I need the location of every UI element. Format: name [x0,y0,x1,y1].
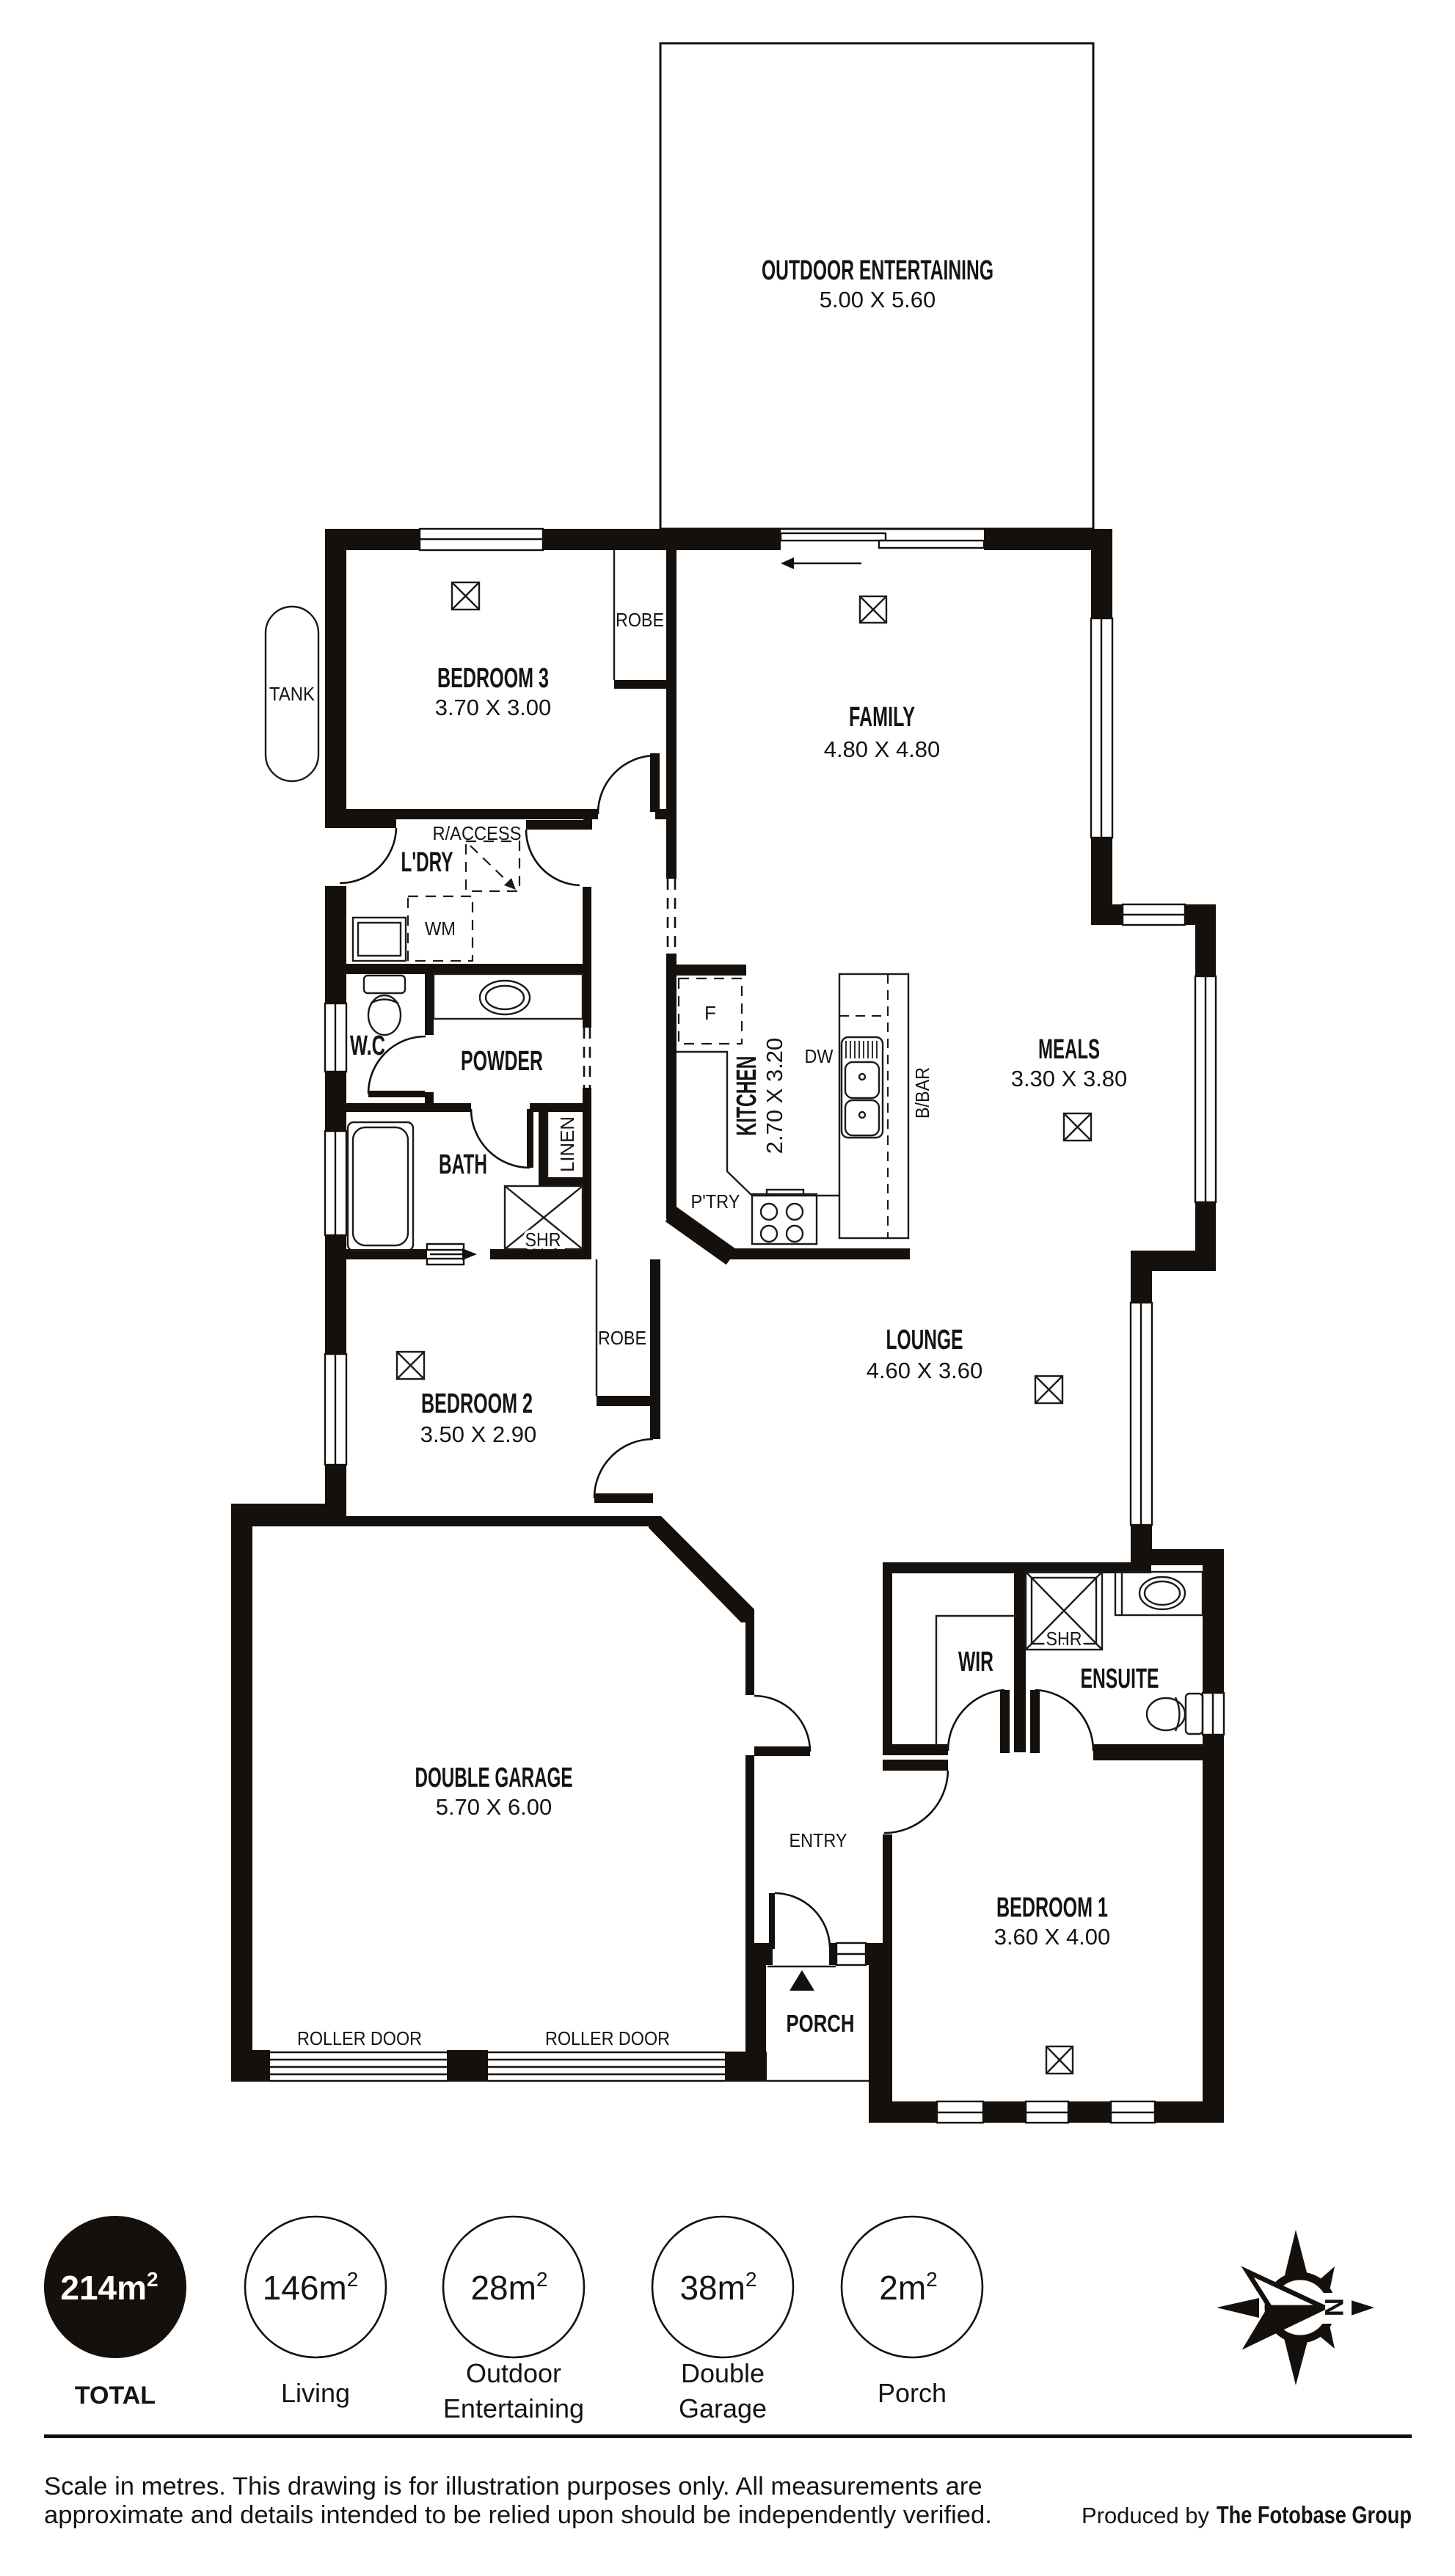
svg-text:DOUBLE GARAGE: DOUBLE GARAGE [415,1763,573,1793]
svg-text:LOUNGE: LOUNGE [886,1325,963,1355]
svg-text:MEALS: MEALS [1038,1034,1100,1065]
svg-text:Living: Living [281,2378,350,2408]
svg-text:F: F [704,1002,716,1024]
svg-text:WIR: WIR [958,1647,993,1677]
svg-text:SHR: SHR [525,1229,561,1251]
svg-text:L'DRY: L'DRY [401,847,453,878]
svg-text:Produced by: Produced by [1082,2503,1210,2528]
svg-text:TANK: TANK [269,683,316,705]
svg-text:ROLLER DOOR: ROLLER DOOR [545,2027,670,2049]
svg-text:3.50 X 2.90: 3.50 X 2.90 [420,1421,537,1447]
svg-text:28m2: 28m2 [470,2268,547,2307]
svg-text:Scale in metres. This drawing: Scale in metres. This drawing is for ill… [44,2473,982,2500]
svg-text:ROBE: ROBE [598,1327,646,1349]
svg-text:3.70 X 3.00: 3.70 X 3.00 [435,695,552,720]
svg-text:5.00 X 5.60: 5.00 X 5.60 [820,287,936,312]
svg-text:4.60 X 3.60: 4.60 X 3.60 [867,1358,983,1383]
svg-text:2.70 X 3.20: 2.70 X 3.20 [762,1038,787,1155]
svg-text:POWDER: POWDER [461,1046,543,1077]
svg-text:Entertaining: Entertaining [443,2393,584,2423]
svg-text:DW: DW [805,1045,834,1067]
svg-text:3.30 X 3.80: 3.30 X 3.80 [1011,1066,1128,1091]
svg-text:Garage: Garage [679,2393,767,2423]
svg-text:P'TRY: P'TRY [691,1190,740,1212]
svg-text:ENSUITE: ENSUITE [1081,1664,1159,1694]
svg-text:approximate and details intend: approximate and details intended to be r… [44,2501,992,2529]
svg-text:ENTRY: ENTRY [790,1829,847,1851]
svg-text:BATH: BATH [439,1149,487,1180]
svg-text:Porch: Porch [878,2378,947,2408]
svg-text:WM: WM [425,918,456,940]
svg-text:38m2: 38m2 [679,2268,756,2307]
svg-text:PORCH: PORCH [787,2010,855,2037]
svg-text:5.70 X 6.00: 5.70 X 6.00 [436,1794,553,1820]
svg-text:Double: Double [681,2358,765,2388]
svg-text:ROLLER DOOR: ROLLER DOOR [297,2027,422,2049]
svg-text:ROBE: ROBE [616,609,664,631]
svg-text:N: N [1319,2298,1348,2316]
svg-text:FAMILY: FAMILY [849,702,915,733]
svg-text:The Fotobase Group: The Fotobase Group [1217,2501,1412,2528]
svg-text:4.80 X 4.80: 4.80 X 4.80 [824,736,941,762]
svg-text:146m2: 146m2 [263,2268,359,2307]
svg-text:W.C: W.C [350,1031,385,1061]
svg-text:Outdoor: Outdoor [466,2358,561,2388]
svg-text:R/ACCESS: R/ACCESS [433,822,522,844]
svg-text:BEDROOM 2: BEDROOM 2 [421,1388,533,1419]
svg-text:214m2: 214m2 [60,2268,158,2307]
svg-text:SHR: SHR [1046,1628,1082,1650]
svg-text:BEDROOM 1: BEDROOM 1 [996,1892,1108,1923]
svg-text:TOTAL: TOTAL [75,2382,156,2409]
svg-text:3.60 X 4.00: 3.60 X 4.00 [994,1924,1111,1950]
svg-text:KITCHEN: KITCHEN [732,1056,762,1136]
svg-text:OUTDOOR ENTERTAINING: OUTDOOR ENTERTAINING [762,255,993,286]
svg-text:BEDROOM 3: BEDROOM 3 [437,663,549,694]
svg-text:B/BAR: B/BAR [911,1067,933,1119]
svg-text:LINEN: LINEN [556,1116,578,1172]
